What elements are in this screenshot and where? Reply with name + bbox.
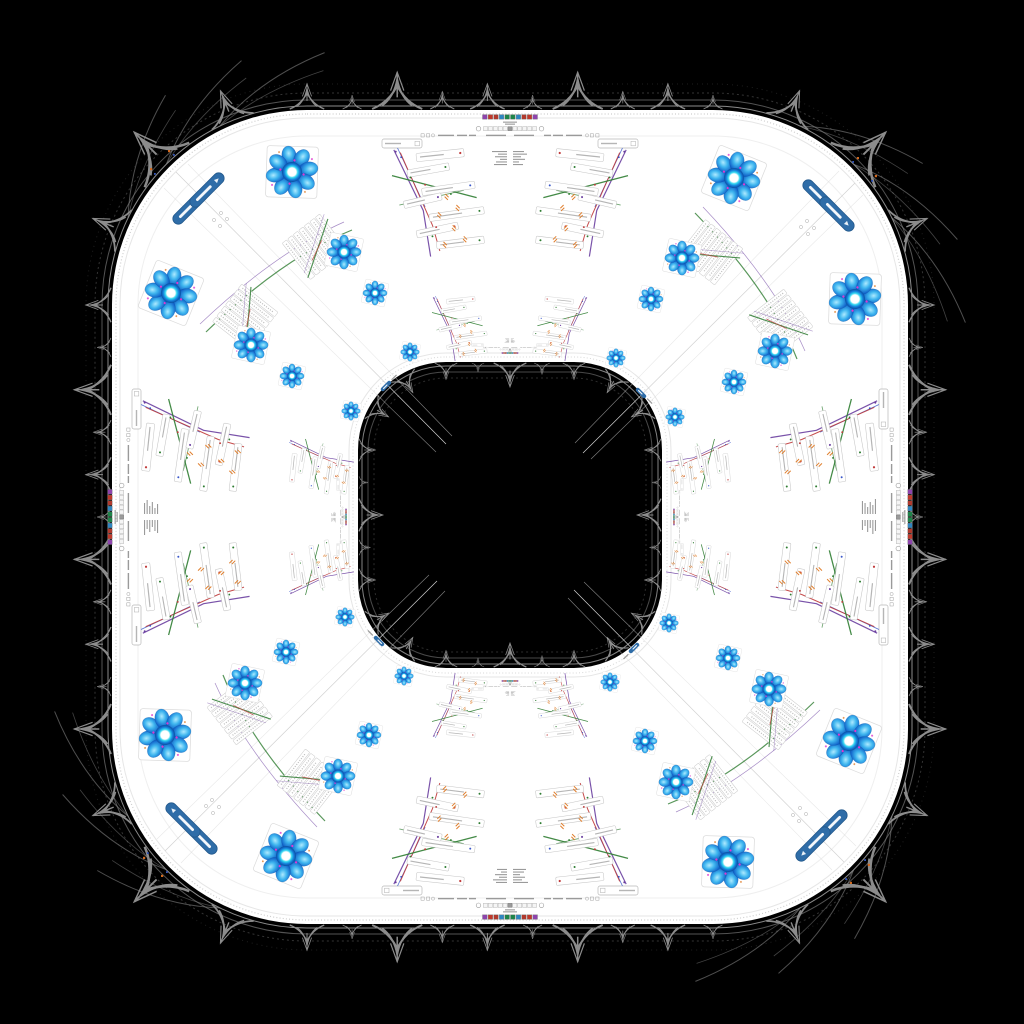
kaleidoscope-canvas: [0, 0, 1024, 1024]
kaleidoscope-stage: [0, 0, 1024, 1024]
